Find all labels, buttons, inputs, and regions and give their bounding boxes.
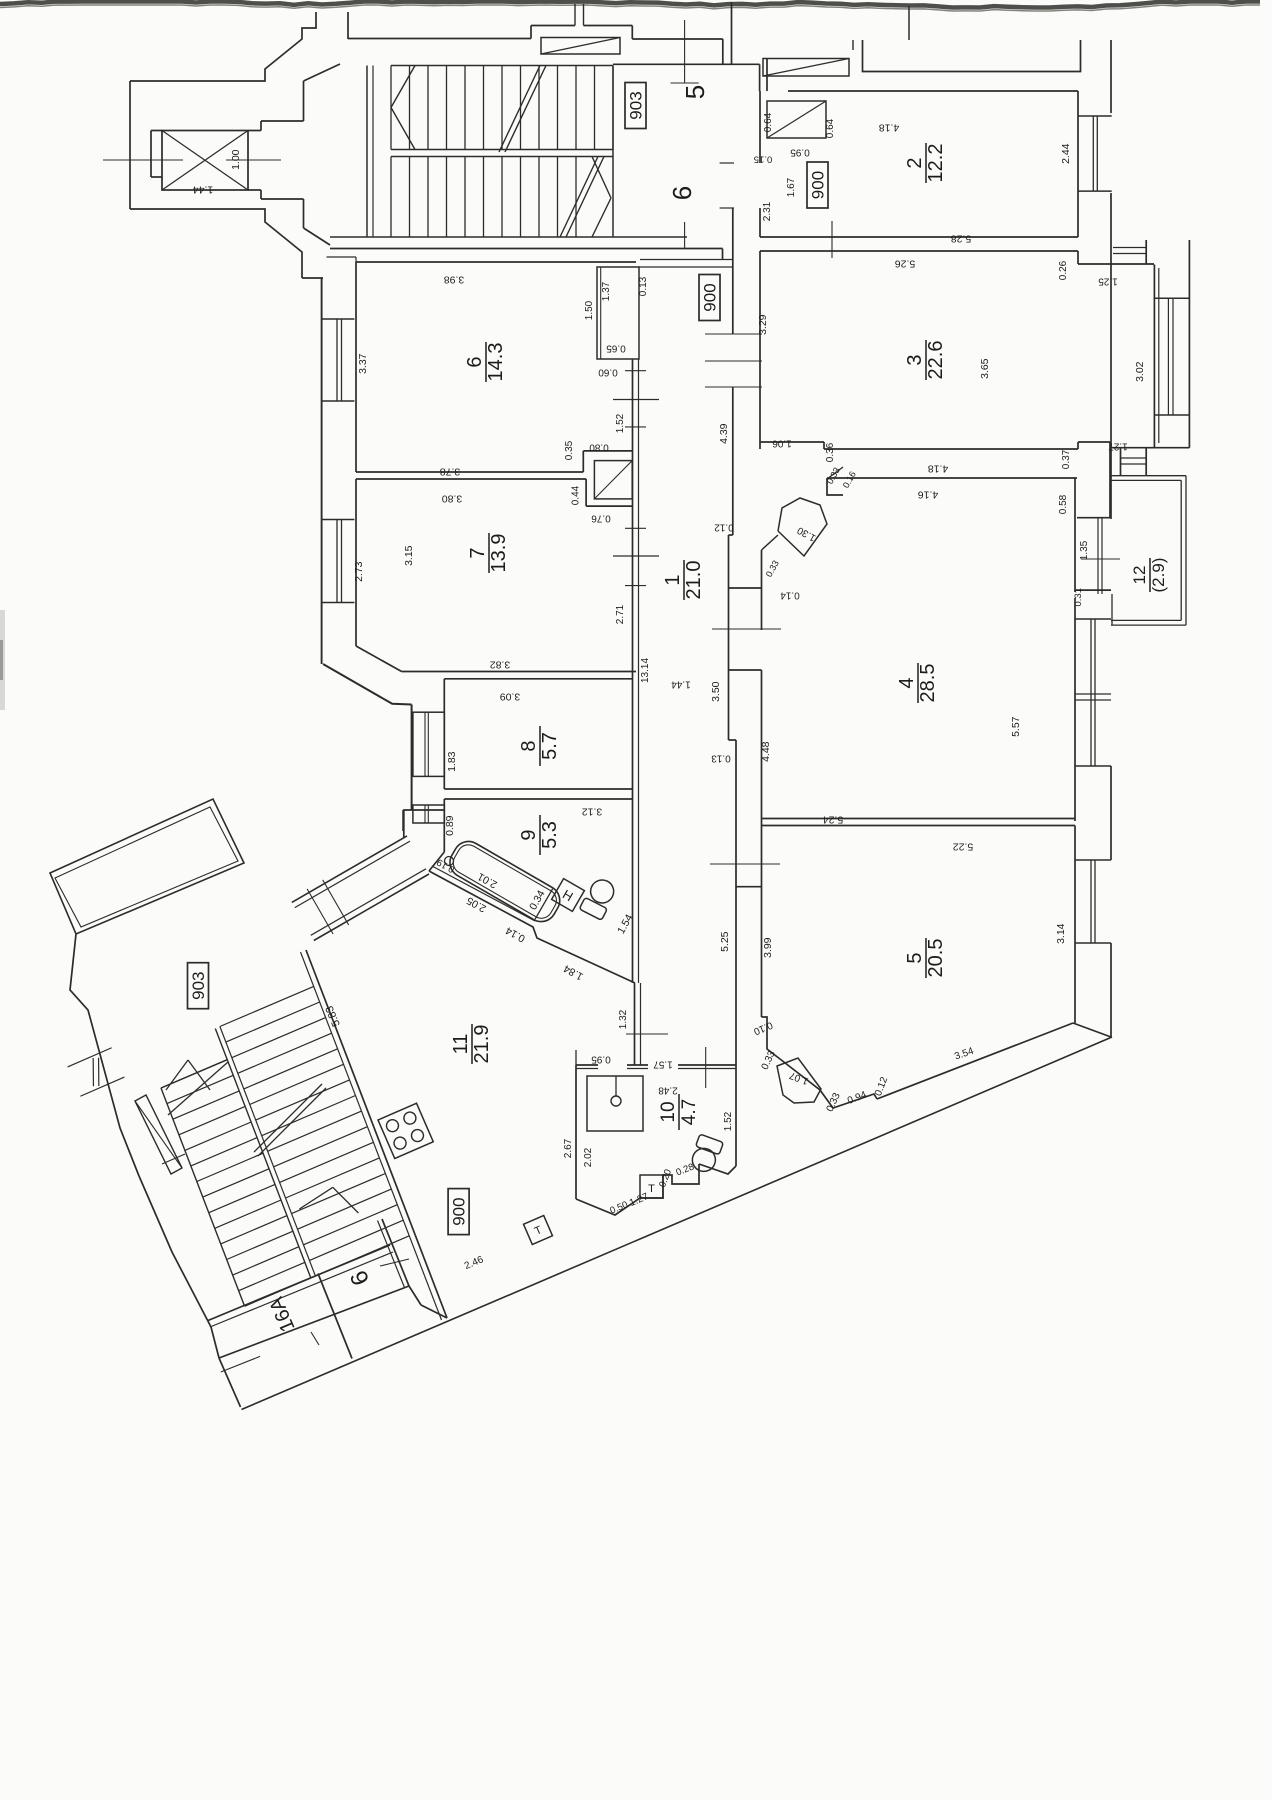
svg-text:3.78: 3.78 bbox=[440, 466, 461, 478]
svg-text:4.18: 4.18 bbox=[928, 463, 949, 475]
svg-text:3.37: 3.37 bbox=[357, 353, 369, 374]
svg-text:0.95: 0.95 bbox=[790, 147, 810, 158]
svg-text:0.58: 0.58 bbox=[1058, 494, 1069, 514]
svg-text:0.13: 0.13 bbox=[638, 276, 649, 296]
svg-text:1: 1 bbox=[662, 574, 684, 585]
svg-text:21.0: 21.0 bbox=[683, 561, 705, 600]
svg-text:2.71: 2.71 bbox=[615, 604, 626, 624]
svg-text:6: 6 bbox=[464, 356, 486, 367]
svg-text:3: 3 bbox=[904, 354, 926, 365]
svg-text:1.83: 1.83 bbox=[446, 751, 458, 772]
svg-text:1.35: 1.35 bbox=[1079, 540, 1090, 560]
svg-text:1.52: 1.52 bbox=[615, 413, 626, 433]
svg-text:5.25: 5.25 bbox=[719, 931, 731, 952]
svg-text:2.73: 2.73 bbox=[353, 561, 365, 582]
svg-text:0.37: 0.37 bbox=[1061, 449, 1072, 469]
svg-text:1.06: 1.06 bbox=[772, 438, 792, 449]
svg-text:3.09: 3.09 bbox=[500, 691, 521, 703]
svg-text:1.00: 1.00 bbox=[230, 149, 242, 170]
svg-text:2.44: 2.44 bbox=[1060, 143, 1072, 164]
svg-text:9: 9 bbox=[518, 829, 540, 840]
svg-text:4.48: 4.48 bbox=[760, 741, 772, 762]
svg-text:14.3: 14.3 bbox=[485, 343, 507, 382]
svg-text:22.6: 22.6 bbox=[925, 341, 947, 380]
svg-text:903: 903 bbox=[627, 91, 646, 119]
svg-text:2.02: 2.02 bbox=[583, 1147, 594, 1167]
svg-text:0.95: 0.95 bbox=[591, 1054, 611, 1065]
svg-text:3.29: 3.29 bbox=[757, 314, 769, 335]
svg-text:11: 11 bbox=[450, 1034, 472, 1055]
svg-text:1.32: 1.32 bbox=[618, 1009, 629, 1029]
svg-text:1.52: 1.52 bbox=[723, 1111, 734, 1131]
svg-text:20.5: 20.5 bbox=[925, 939, 947, 978]
svg-text:21.9: 21.9 bbox=[471, 1025, 493, 1064]
svg-text:5.22: 5.22 bbox=[953, 841, 974, 853]
svg-text:5.28: 5.28 bbox=[951, 233, 972, 245]
svg-text:T: T bbox=[648, 1183, 655, 1195]
svg-text:3.12: 3.12 bbox=[582, 806, 603, 818]
svg-text:0.14: 0.14 bbox=[780, 590, 800, 601]
svg-text:2.31: 2.31 bbox=[762, 201, 773, 221]
svg-text:5.57: 5.57 bbox=[1010, 716, 1022, 737]
svg-text:2: 2 bbox=[904, 157, 926, 168]
svg-text:4: 4 bbox=[896, 677, 918, 688]
svg-text:0.13: 0.13 bbox=[711, 753, 731, 764]
svg-text:1.25: 1.25 bbox=[1098, 276, 1118, 287]
svg-text:10: 10 bbox=[658, 1101, 679, 1122]
svg-text:3.50: 3.50 bbox=[710, 681, 722, 702]
svg-text:5.26: 5.26 bbox=[895, 258, 916, 270]
svg-text:0.64: 0.64 bbox=[763, 112, 774, 132]
svg-text:12: 12 bbox=[1130, 566, 1149, 585]
svg-text:900: 900 bbox=[809, 171, 828, 199]
svg-text:3.65: 3.65 bbox=[979, 358, 991, 379]
svg-text:5.7: 5.7 bbox=[539, 732, 561, 760]
svg-text:4.7: 4.7 bbox=[679, 1099, 700, 1125]
svg-text:3.14: 3.14 bbox=[1055, 923, 1067, 944]
svg-text:12.2: 12.2 bbox=[925, 144, 947, 183]
svg-text:3.98: 3.98 bbox=[444, 274, 465, 286]
svg-text:0.65: 0.65 bbox=[606, 343, 626, 354]
svg-text:0.26: 0.26 bbox=[1058, 260, 1069, 280]
svg-text:13.14: 13.14 bbox=[640, 658, 651, 683]
svg-text:3.15: 3.15 bbox=[403, 545, 415, 566]
svg-text:0.36: 0.36 bbox=[825, 442, 836, 462]
svg-text:5.24: 5.24 bbox=[823, 814, 844, 826]
svg-text:6: 6 bbox=[667, 186, 697, 200]
svg-text:1.50: 1.50 bbox=[584, 300, 595, 320]
svg-text:1.44: 1.44 bbox=[671, 679, 691, 690]
svg-text:7: 7 bbox=[467, 547, 489, 558]
svg-text:0.44: 0.44 bbox=[571, 485, 582, 505]
svg-text:13.9: 13.9 bbox=[488, 534, 510, 573]
svg-text:1.67: 1.67 bbox=[786, 177, 797, 197]
svg-text:0.80: 0.80 bbox=[589, 442, 609, 453]
svg-text:0.15: 0.15 bbox=[754, 153, 773, 164]
svg-text:4.39: 4.39 bbox=[718, 423, 730, 444]
svg-text:2.48: 2.48 bbox=[658, 1085, 678, 1096]
svg-text:(2.9): (2.9) bbox=[1149, 558, 1168, 593]
svg-text:4.16: 4.16 bbox=[918, 489, 939, 501]
svg-text:0.12: 0.12 bbox=[714, 522, 734, 533]
svg-text:0.35: 0.35 bbox=[564, 440, 575, 460]
svg-text:5: 5 bbox=[680, 85, 710, 99]
svg-text:903: 903 bbox=[189, 972, 208, 1000]
svg-text:2.67: 2.67 bbox=[563, 1138, 574, 1158]
svg-text:3.02: 3.02 bbox=[1134, 361, 1146, 382]
svg-text:1.44: 1.44 bbox=[193, 184, 214, 196]
svg-text:0.60: 0.60 bbox=[598, 367, 618, 378]
svg-text:3.99: 3.99 bbox=[762, 937, 774, 958]
svg-text:0.64: 0.64 bbox=[825, 118, 836, 138]
svg-text:28.5: 28.5 bbox=[917, 664, 939, 703]
svg-text:3.82: 3.82 bbox=[490, 659, 511, 671]
svg-text:1.37: 1.37 bbox=[601, 281, 612, 301]
svg-text:0.89: 0.89 bbox=[444, 815, 456, 836]
svg-text:1.57: 1.57 bbox=[653, 1059, 673, 1070]
svg-text:900: 900 bbox=[701, 283, 720, 311]
svg-text:900: 900 bbox=[450, 1197, 469, 1225]
svg-text:5: 5 bbox=[904, 952, 926, 963]
svg-text:0.76: 0.76 bbox=[591, 513, 611, 524]
svg-text:3.80: 3.80 bbox=[442, 493, 463, 505]
svg-text:5.3: 5.3 bbox=[539, 821, 561, 849]
svg-text:8: 8 bbox=[518, 740, 540, 751]
svg-text:4.18: 4.18 bbox=[879, 122, 900, 134]
